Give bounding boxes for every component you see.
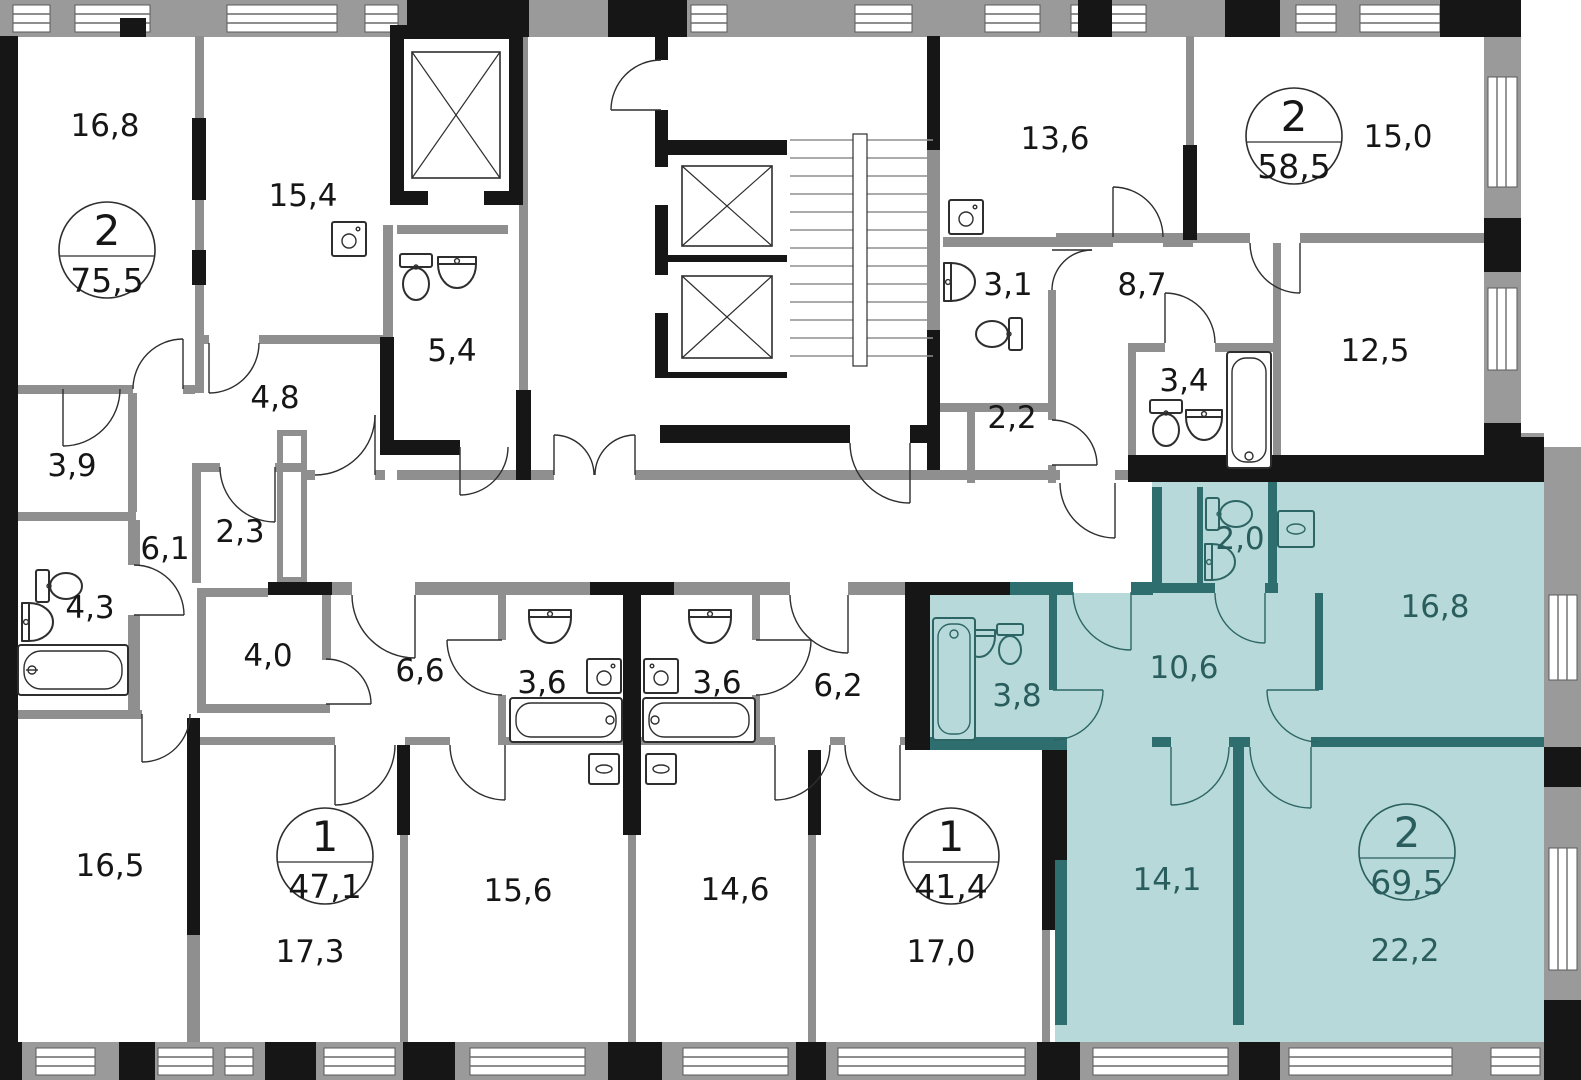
room-label: 15,4 [268,178,337,214]
apartment-area: 75,5 [70,261,143,300]
room-label: 13,6 [1020,121,1089,157]
room-label: 15,0 [1363,119,1432,155]
laundry-icon [646,754,676,784]
apartment-rooms-count: 2 [94,206,121,255]
room-label: 4,0 [243,638,292,674]
room-label: 4,3 [65,590,114,626]
room-label: 17,3 [275,934,344,970]
room-label: 22,2 [1370,933,1439,969]
room-label: 14,1 [1132,862,1201,898]
bathtub-icon [18,645,128,695]
apartment-rooms-count: 2 [1281,92,1308,141]
room-label: 12,5 [1340,333,1409,369]
washing-machine-icon [332,222,366,256]
apartment-badge-69-5-highlighted[interactable]: 2 69,5 [1359,804,1455,902]
room-label: 2,2 [987,400,1036,436]
room-label: 14,6 [700,872,769,908]
stair-stringer [853,134,867,366]
room-label: 3,4 [1159,363,1208,399]
apartment-rooms-count: 2 [1394,808,1421,857]
apartment-badge-47-1[interactable]: 1 47,1 [277,808,373,906]
washing-machine-icon [1278,511,1314,547]
room-label: 5,4 [427,333,476,369]
apartment-rooms-count: 1 [938,812,965,861]
washing-machine-icon [644,659,678,693]
toilet-icon [1150,400,1182,446]
toilet-icon [976,318,1022,350]
laundry-icon [589,754,619,784]
room-label: 10,6 [1149,650,1218,686]
room-label: 3,6 [692,665,741,701]
apartment-area: 69,5 [1370,863,1443,902]
room-label: 2,0 [1215,521,1264,557]
room-label: 3,9 [47,448,96,484]
washing-machine-icon [949,200,983,234]
toilet-icon [400,254,432,300]
elevator-icon [682,166,772,246]
room-label: 3,8 [992,678,1041,714]
elevator-icon [412,52,500,178]
elevator-icon [682,276,772,358]
room-label: 6,1 [140,531,189,567]
bathtub-icon [510,698,622,742]
apartment-area: 47,1 [288,867,361,906]
room-label: 2,3 [215,514,264,550]
room-label: 17,0 [906,934,975,970]
floor-plan-drawing: 16,8 15,4 5,4 4,8 3,9 6,1 2,3 4,3 16,5 1… [0,0,1581,1080]
apartment-rooms-count: 1 [312,812,339,861]
room-label: 8,7 [1117,267,1166,303]
room-label: 16,8 [1400,589,1469,625]
room-label: 4,8 [250,380,299,416]
room-label: 3,6 [517,665,566,701]
room-label: 6,2 [813,668,862,704]
apartment-badge-58-5[interactable]: 2 58,5 [1246,88,1342,186]
bathtub-icon [643,698,755,742]
washing-machine-icon [587,659,621,693]
room-label: 16,8 [70,108,139,144]
room-label: 6,6 [395,653,444,689]
bathtub-icon [933,618,975,740]
room-label: 15,6 [483,873,552,909]
apartment-badge-75-5[interactable]: 2 75,5 [59,202,155,300]
bathtub-icon [1227,352,1271,468]
room-label: 16,5 [75,848,144,884]
apartment-area: 58,5 [1257,147,1330,186]
floor-plan-page: 16,8 15,4 5,4 4,8 3,9 6,1 2,3 4,3 16,5 1… [0,0,1581,1080]
apartment-area: 41,4 [914,867,987,906]
room-label: 3,1 [983,267,1032,303]
toilet-icon [997,624,1023,664]
apartment-badge-41-4[interactable]: 1 41,4 [903,808,999,906]
